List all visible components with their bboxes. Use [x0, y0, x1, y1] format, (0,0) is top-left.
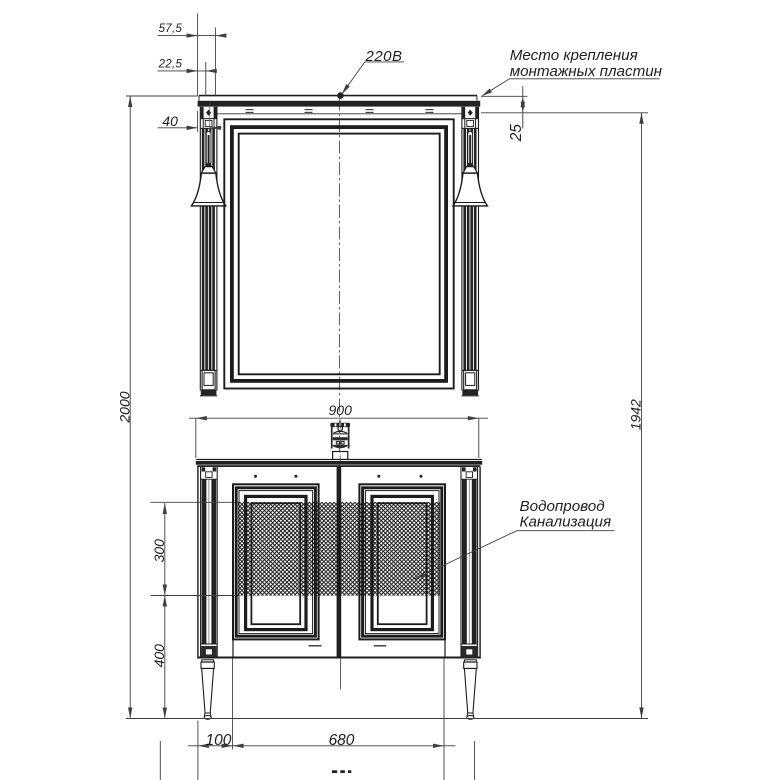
svg-text:монтажных пластин: монтажных пластин	[510, 63, 663, 80]
svg-text:57,5: 57,5	[159, 23, 183, 35]
svg-text:680: 680	[329, 732, 355, 749]
svg-text:2000: 2000	[117, 391, 133, 423]
svg-text:900: 900	[329, 402, 353, 418]
svg-text:300: 300	[151, 539, 167, 563]
svg-text:1942: 1942	[628, 399, 644, 430]
svg-text:Водопровод: Водопровод	[520, 498, 605, 515]
svg-text:22,5: 22,5	[158, 58, 183, 70]
svg-text:100: 100	[205, 732, 231, 749]
svg-text:Канализация: Канализация	[520, 513, 612, 530]
svg-text:220В: 220В	[365, 48, 403, 65]
svg-text:25: 25	[508, 124, 525, 143]
svg-text:Место крепления: Место крепления	[510, 47, 638, 64]
svg-text:40: 40	[162, 113, 178, 129]
svg-text:400: 400	[151, 644, 167, 668]
